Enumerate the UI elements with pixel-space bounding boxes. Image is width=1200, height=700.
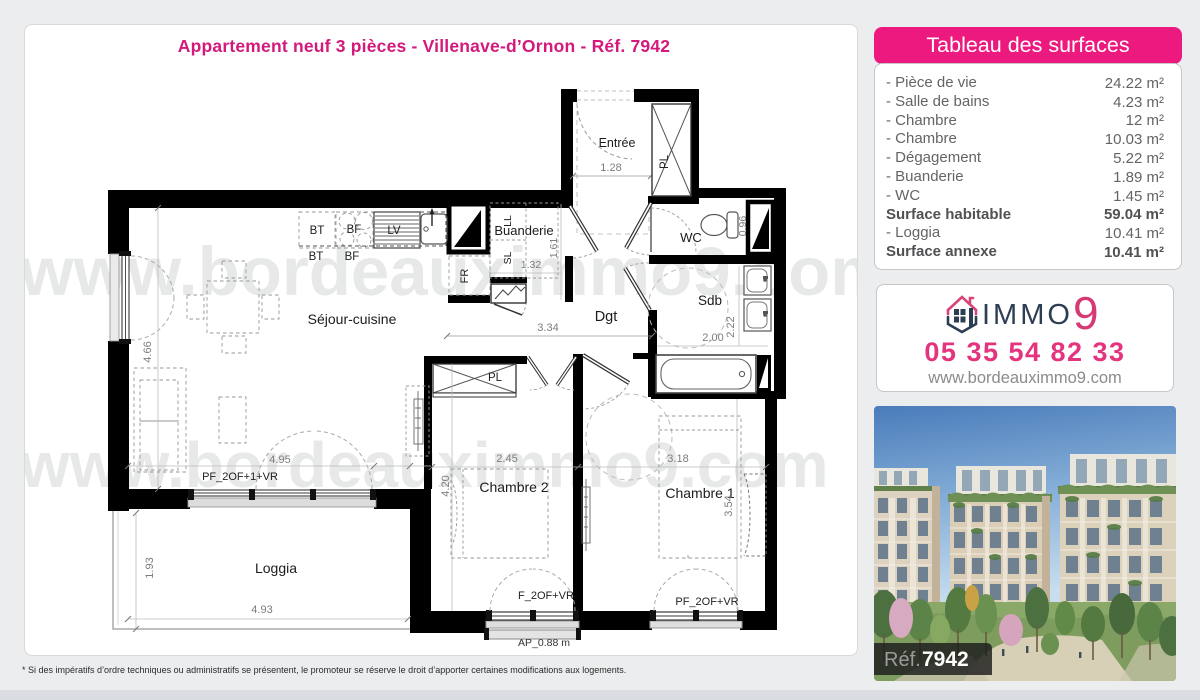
svg-text:2.22: 2.22 <box>725 316 737 337</box>
svg-text:2.00: 2.00 <box>702 332 723 344</box>
svg-text:Sdb: Sdb <box>698 293 722 308</box>
svg-text:1.28: 1.28 <box>600 162 621 174</box>
svg-text:SL: SL <box>502 251 514 264</box>
svg-text:1.93: 1.93 <box>144 557 156 578</box>
svg-text:BT: BT <box>310 225 325 237</box>
svg-text:AP_0.88 m: AP_0.88 m <box>518 637 570 649</box>
svg-text:2.45: 2.45 <box>496 453 517 465</box>
svg-text:Chambre 2: Chambre 2 <box>479 479 548 495</box>
svg-text:FR: FR <box>459 269 471 284</box>
svg-text:4.20: 4.20 <box>440 475 452 496</box>
svg-text:IMMO: IMMO <box>982 299 1073 331</box>
svg-text:BF: BF <box>347 224 362 236</box>
svg-text:WC: WC <box>680 230 702 245</box>
svg-text:4.93: 4.93 <box>251 604 272 616</box>
svg-text:1.32: 1.32 <box>521 259 542 271</box>
svg-text:3.54: 3.54 <box>723 495 735 516</box>
svg-text:F_2OF+VR: F_2OF+VR <box>518 590 574 602</box>
svg-text:PF_2OF+1+VR: PF_2OF+1+VR <box>202 471 278 483</box>
svg-text:PL: PL <box>659 154 671 169</box>
svg-text:Séjour-cuisine: Séjour-cuisine <box>308 311 397 327</box>
svg-text:4.95: 4.95 <box>269 454 290 466</box>
svg-text:PL: PL <box>488 372 503 384</box>
svg-text:Buanderie: Buanderie <box>494 223 553 238</box>
svg-text:4.66: 4.66 <box>142 341 154 362</box>
svg-text:1.61: 1.61 <box>548 238 560 259</box>
svg-text:BT: BT <box>309 251 324 263</box>
svg-text:7942: 7942 <box>922 648 969 671</box>
svg-text:BF: BF <box>345 251 360 263</box>
svg-text:Dgt: Dgt <box>595 309 618 325</box>
svg-text:3.34: 3.34 <box>537 322 558 334</box>
svg-text:Loggia: Loggia <box>255 560 297 576</box>
svg-text:3.18: 3.18 <box>667 453 688 465</box>
svg-text:PF_2OF+VR: PF_2OF+VR <box>675 596 738 608</box>
svg-text:LV: LV <box>387 225 401 237</box>
svg-text:9: 9 <box>1073 293 1099 335</box>
svg-text:Réf.: Réf. <box>884 649 921 671</box>
svg-text:Entrée: Entrée <box>599 136 636 150</box>
